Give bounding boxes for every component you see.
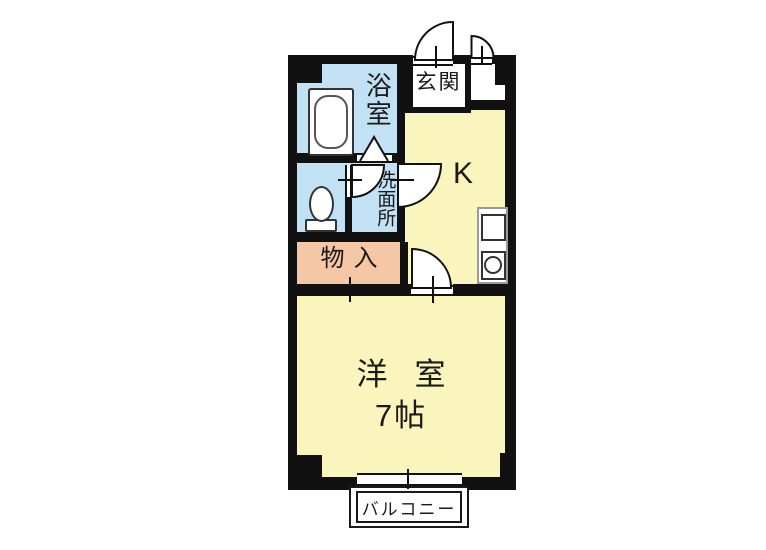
- room-door-threshold: [411, 285, 453, 296]
- wall-bathroom-bottom-right: [392, 153, 405, 163]
- washroom-label: 洗面所: [374, 170, 395, 227]
- utility-pipe-space-block: [495, 64, 512, 85]
- toilet-icon: [309, 186, 334, 222]
- wall-washroom-kitchen: [397, 206, 405, 242]
- balcony-window: [357, 473, 462, 486]
- entrance-label: 玄関: [412, 72, 465, 94]
- sink-circle-icon: [484, 256, 502, 274]
- entrance-step-edge: [413, 107, 471, 113]
- entrance-door-threshold: [413, 56, 453, 66]
- bathroom-door-opening: [357, 153, 392, 163]
- wall-bottom-right-segment: [462, 477, 516, 490]
- utility-door-threshold: [471, 56, 492, 65]
- wall-room-top-left: [288, 284, 411, 296]
- western-room-size: 7帖: [293, 400, 509, 433]
- bathroom-label: 浴室: [363, 72, 390, 128]
- wall-bottom-left-segment: [288, 477, 357, 490]
- storage-label: 物入: [295, 246, 403, 271]
- bathtub-inner-rim: [314, 95, 348, 149]
- stove-icon: [481, 214, 506, 241]
- wall-washroom-bottom: [288, 232, 405, 242]
- wall-bathroom-entrance: [397, 55, 413, 113]
- entrance-door-swing-icon: [415, 22, 453, 60]
- balcony-inner-outline: バルコニー: [356, 491, 462, 523]
- toilet-door-opening: [345, 165, 352, 197]
- washroom-door-opening: [397, 164, 405, 207]
- western-room-label: 洋室: [293, 359, 509, 392]
- kitchen-label: K: [447, 158, 479, 190]
- floor-plan: バルコニー 浴室 玄関 K 洗面所 物入 洋室 7帖: [0, 0, 766, 550]
- balcony-label: バルコニー: [362, 495, 457, 520]
- utility-door-swing-icon: [472, 36, 494, 58]
- wall-utility-bottom: [465, 100, 516, 110]
- wall-room-top-right: [453, 284, 516, 296]
